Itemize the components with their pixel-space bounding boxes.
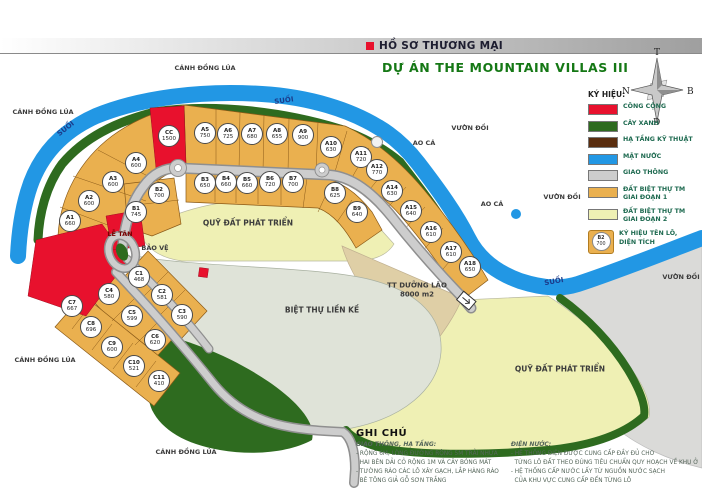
notes-title: GHI CHÚ (356, 428, 692, 439)
notes-section-heading: ĐIỆN NƯỚC: (511, 441, 699, 448)
plot-badge: A17610 (440, 241, 462, 263)
plot-area: 599 (127, 316, 138, 322)
plot-area: 750 (200, 133, 211, 139)
plot-area: 521 (129, 366, 140, 372)
plot-area: 580 (104, 294, 115, 300)
notes-section-heading: GIAO THÔNG, HẠ TẦNG: (356, 441, 499, 448)
plot-badge: A8655 (266, 123, 288, 145)
plot-area: 581 (157, 295, 168, 301)
plot-area: 650 (465, 267, 476, 273)
map-area-label: QUỸ ĐẤT PHÁT TRIỂN (515, 364, 605, 373)
plot-area: 620 (150, 340, 161, 346)
plot-badge: A18650 (459, 256, 481, 278)
legend-item: MẶT NƯỚC (588, 153, 702, 165)
plot-area: 700 (154, 193, 165, 199)
legend-swatch (588, 170, 618, 181)
legend-item: ĐẤT BIỆT THỰ TMGIAI ĐOẠN 2 (588, 208, 702, 226)
legend-swatch (588, 121, 618, 132)
legend-plot-symbol: B2700 (588, 230, 614, 254)
plot-area: 410 (154, 381, 165, 387)
map-area-label: CÁNH ĐỒNG LÚA (175, 64, 236, 72)
legend-item-label: KÝ HIỆU TÊN LÔ,DIỆN TÍCH (619, 230, 677, 248)
plot-area: 600 (131, 163, 142, 169)
plot-badge: B7700 (282, 171, 304, 193)
legend-item: HẠ TẦNG KỸ THUẬT (588, 136, 702, 148)
plot-badge: A10630 (320, 136, 342, 158)
map-area-label: VƯỜN ĐỒI (543, 193, 580, 201)
plot-area: 660 (65, 221, 76, 227)
legend-title: KÝ HIỆU: (588, 90, 702, 99)
legend-item-label: HẠ TẦNG KỸ THUẬT (623, 136, 693, 145)
legend-item-label: ĐẤT BIỆT THỰ TMGIAI ĐOẠN 1 (623, 186, 685, 204)
legend-symbol-area: 700 (596, 242, 605, 248)
plot-badge: A14630 (381, 180, 403, 202)
plot-badge: A15640 (400, 200, 422, 222)
notes-section: ĐIỆN NƯỚC:- HỆ THỐNG ĐIỆN ĐƯỢC CUNG CẤP … (511, 441, 699, 486)
red-square-icon (366, 42, 374, 50)
legend-swatch (588, 137, 618, 148)
map-area-label: AO CÁ (481, 200, 504, 208)
plot-area: 600 (107, 347, 118, 353)
legend-plot-symbol-circle: B2700 (592, 232, 611, 251)
plot-badge: C7667 (61, 295, 83, 317)
compass-top-label: T (654, 48, 660, 58)
plot-area: 720 (356, 157, 367, 163)
plot-area: 720 (265, 182, 276, 188)
notes-line: BÊ TÔNG GIẢ GỖ SƠN TRẮNG (356, 477, 499, 486)
legend-item: B2700KÝ HIỆU TÊN LÔ,DIỆN TÍCH (588, 230, 702, 254)
plot-area: 655 (272, 134, 283, 140)
plot-badge: B3650 (194, 172, 216, 194)
notes-line: CỦA KHU VỰC CUNG CẤP ĐẾN TỪNG LÔ (511, 477, 699, 486)
legend-swatch (588, 104, 618, 115)
notes-line: HAI BÊN DẢI CỎ RỘNG 1M VÀ CÂY BÓNG MÁT (356, 459, 499, 468)
legend-item-label: MẶT NƯỚC (623, 153, 661, 162)
plot-area: 660 (221, 182, 232, 188)
map-area-label: CÁNH ĐỒNG LÚA (13, 108, 74, 116)
plot-badge: C5599 (121, 305, 143, 327)
legend-item: CÂY XANH (588, 120, 702, 132)
notes-line: - HỆ THỐNG ĐIỆN ĐƯỢC CUNG CẤP ĐẦY ĐỦ CHO (511, 450, 699, 459)
plot-badge: B2700 (148, 182, 170, 204)
legend-item-label: CÂY XANH (623, 120, 659, 129)
legend-item-label: ĐẤT BIỆT THỰ TMGIAI ĐOẠN 2 (623, 208, 685, 226)
legend-item: ĐẤT BIỆT THỰ TMGIAI ĐOẠN 1 (588, 186, 702, 204)
plot-area: 660 (242, 183, 253, 189)
legend-item-label: GIAO THÔNG (623, 169, 668, 178)
plot-badge: A3600 (102, 171, 124, 193)
notes-line: TỪNG LÔ ĐẤT THEO ĐÚNG TIÊU CHUẨN QUY HOẠ… (511, 459, 699, 468)
plot-badge: C8696 (80, 316, 102, 338)
map-area-label: TT DƯỠNG LÃO8000 m2 (387, 281, 447, 299)
plot-badge: A9900 (292, 124, 314, 146)
plot-badge: B8625 (324, 182, 346, 204)
plot-badge: C9600 (101, 336, 123, 358)
map-area-label: BẢO VỆ (141, 244, 168, 252)
legend-swatch (588, 154, 618, 165)
map-area-label: BIỆT THỰ LIỀN KỀ (285, 305, 359, 314)
plot-area: 600 (108, 182, 119, 188)
map-area-label: AO CÁ (413, 139, 436, 147)
plot-area: 700 (288, 182, 299, 188)
plot-area: 610 (446, 252, 457, 258)
plot-badge: C2581 (151, 284, 173, 306)
plot-area: 696 (86, 327, 97, 333)
site-plan-page: HỒ SƠ THƯƠNG MẠI DỰ ÁN THE MOUNTAIN VILL… (0, 0, 702, 496)
plot-badge: A4600 (125, 152, 147, 174)
legend-items: CÔNG CỘNGCÂY XANHHẠ TẦNG KỸ THUẬTMẶT NƯỚ… (588, 103, 702, 254)
plot-badge: A12770 (366, 159, 388, 181)
notes-line: - RỘNG 6M, LÒNG ĐƯỜNG RỘNG 5M TRẢI NHỰA (356, 450, 499, 459)
page-title: DỰ ÁN THE MOUNTAIN VILLAS III (382, 60, 629, 75)
legend-item: GIAO THÔNG (588, 169, 702, 181)
plot-area: 900 (298, 135, 309, 141)
plot-badge: CC1500 (158, 125, 180, 147)
notes-section: GIAO THÔNG, HẠ TẦNG:- RỘNG 6M, LÒNG ĐƯỜN… (356, 441, 499, 486)
plot-area: 680 (247, 134, 258, 140)
plot-badge: C4580 (98, 283, 120, 305)
plot-badge: C11410 (148, 370, 170, 392)
plot-area: 650 (200, 183, 211, 189)
plot-area: 667 (67, 306, 78, 312)
plot-badge: B1745 (125, 201, 147, 223)
plot-area: 1500 (162, 136, 176, 142)
plot-badge: B4660 (215, 171, 237, 193)
plot-badge: A16610 (420, 221, 442, 243)
legend-swatch (588, 209, 618, 220)
plot-area: 600 (84, 201, 95, 207)
map-area-label: CÁNH ĐỒNG LÚA (15, 356, 76, 364)
header-bar: HỒ SƠ THƯƠNG MẠI (0, 38, 702, 54)
plot-area: 640 (406, 211, 417, 217)
legend-item-label: CÔNG CỘNG (623, 103, 666, 112)
plot-area: 625 (330, 193, 341, 199)
legend: KÝ HIỆU: CÔNG CỘNGCÂY XANHHẠ TẦNG KỸ THU… (588, 90, 702, 258)
plot-area: 468 (134, 277, 145, 283)
map-area-label: CÁNH ĐỒNG LÚA (156, 448, 217, 456)
plot-badge: A1660 (59, 210, 81, 232)
plot-badge: C1468 (128, 266, 150, 288)
doc-label: HỒ SƠ THƯƠNG MẠI (366, 40, 503, 52)
map-area-label: LỄ TÂN (107, 230, 132, 238)
plot-area: 610 (426, 232, 437, 238)
map-area-label: VƯỜN ĐỒI (662, 273, 699, 281)
plot-badge: A5750 (194, 122, 216, 144)
legend-swatch (588, 187, 618, 198)
plot-badge: C3590 (171, 304, 193, 326)
notes-sections: GIAO THÔNG, HẠ TẦNG:- RỘNG 6M, LÒNG ĐƯỜN… (356, 441, 692, 486)
plot-area: 745 (131, 212, 142, 218)
plot-badge: B5660 (236, 172, 258, 194)
notes-block: GHI CHÚ GIAO THÔNG, HẠ TẦNG:- RỘNG 6M, L… (356, 428, 692, 486)
plot-badge: B6720 (259, 171, 281, 193)
legend-item: CÔNG CỘNG (588, 103, 702, 115)
map-area-label: VƯỜN ĐỒI (451, 124, 488, 132)
plot-badge: A7680 (241, 123, 263, 145)
plot-badge: A2600 (78, 190, 100, 212)
plot-badge: C6620 (144, 329, 166, 351)
map-area-label: QUỸ ĐẤT PHÁT TRIỂN (203, 218, 293, 227)
notes-line: - TƯỜNG RÀO CÁC LÔ XÂY GẠCH, LẮP HÀNG RÀ… (356, 468, 499, 477)
doc-label-text: HỒ SƠ THƯƠNG MẠI (379, 40, 503, 52)
plot-area: 630 (326, 147, 337, 153)
notes-line: - HỆ THỐNG CẤP NƯỚC LẤY TỪ NGUỒN NƯỚC SẠ… (511, 468, 699, 477)
plot-area: 770 (372, 170, 383, 176)
plot-area: 725 (223, 134, 234, 140)
plot-badge: B9640 (346, 201, 368, 223)
plot-area: 630 (387, 191, 398, 197)
plot-area: 590 (177, 315, 188, 321)
plot-badge: C10521 (123, 355, 145, 377)
plot-badge: A6725 (217, 123, 239, 145)
plot-area: 640 (352, 212, 363, 218)
